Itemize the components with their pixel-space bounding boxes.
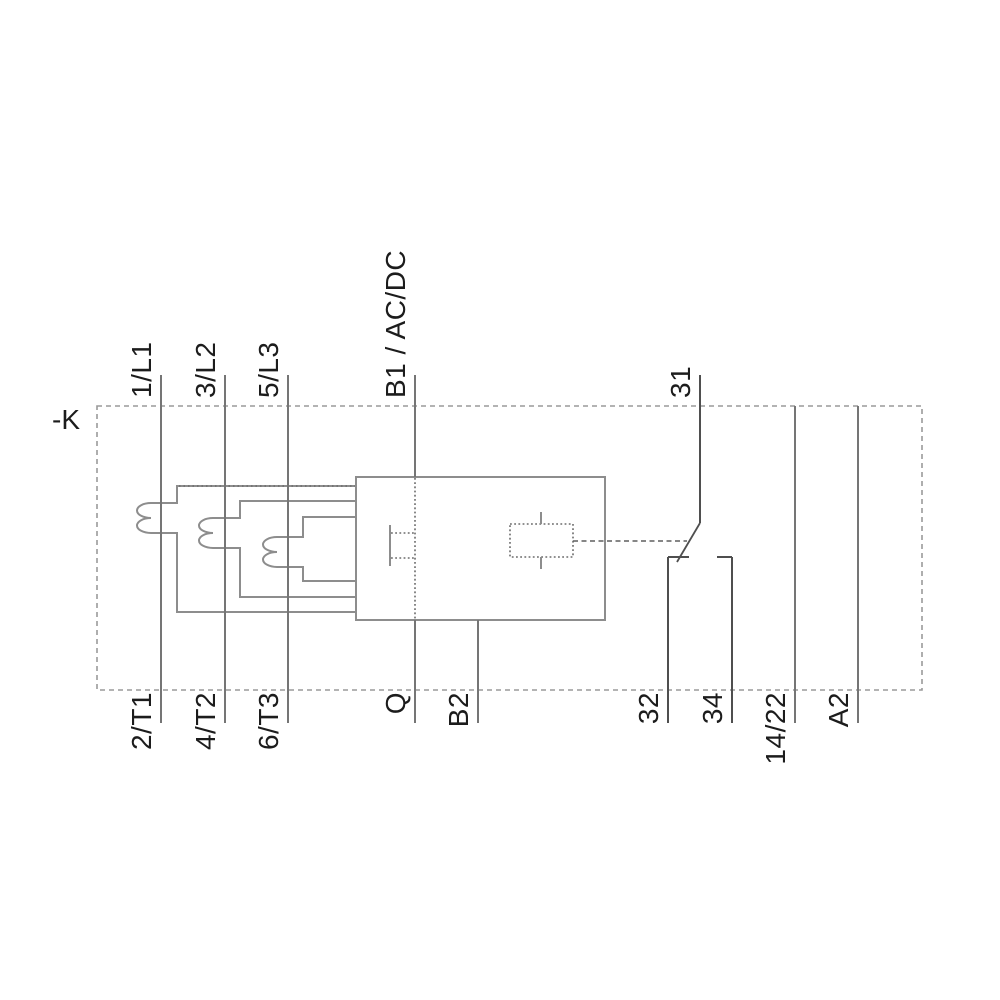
terminal-label-a2: A2: [824, 692, 854, 727]
heater-outline-phase2: [199, 501, 357, 597]
terminal-label-34: 34: [698, 692, 728, 724]
terminal-label-31: 31: [666, 366, 696, 398]
wiring-diagram: -K 1/L1 3/L2 5/L3 B1 / AC/DC 31 2/T1 4/T…: [0, 0, 1000, 1000]
diagram-strokes: [0, 0, 1000, 1000]
terminal-label-32: 32: [634, 692, 664, 724]
device-designation: -K: [52, 405, 80, 435]
terminal-label-b2: B2: [444, 692, 474, 727]
terminal-label-3l2: 3/L2: [191, 342, 221, 399]
terminal-label-b1-acdc: B1 / AC/DC: [381, 250, 411, 398]
terminal-label-4t2: 4/T2: [191, 692, 221, 750]
terminal-label-q: Q: [381, 692, 411, 714]
relay-box: [356, 477, 605, 620]
heater-outline-phase1: [137, 486, 357, 612]
terminal-label-1l1: 1/L1: [127, 342, 157, 399]
terminal-label-6t3: 6/T3: [254, 692, 284, 750]
terminal-label-2t1: 2/T1: [127, 692, 157, 750]
heater-outline-phase3: [263, 517, 357, 581]
terminal-label-5l3: 5/L3: [254, 342, 284, 399]
terminal-label-14-22: 14/22: [761, 692, 791, 765]
